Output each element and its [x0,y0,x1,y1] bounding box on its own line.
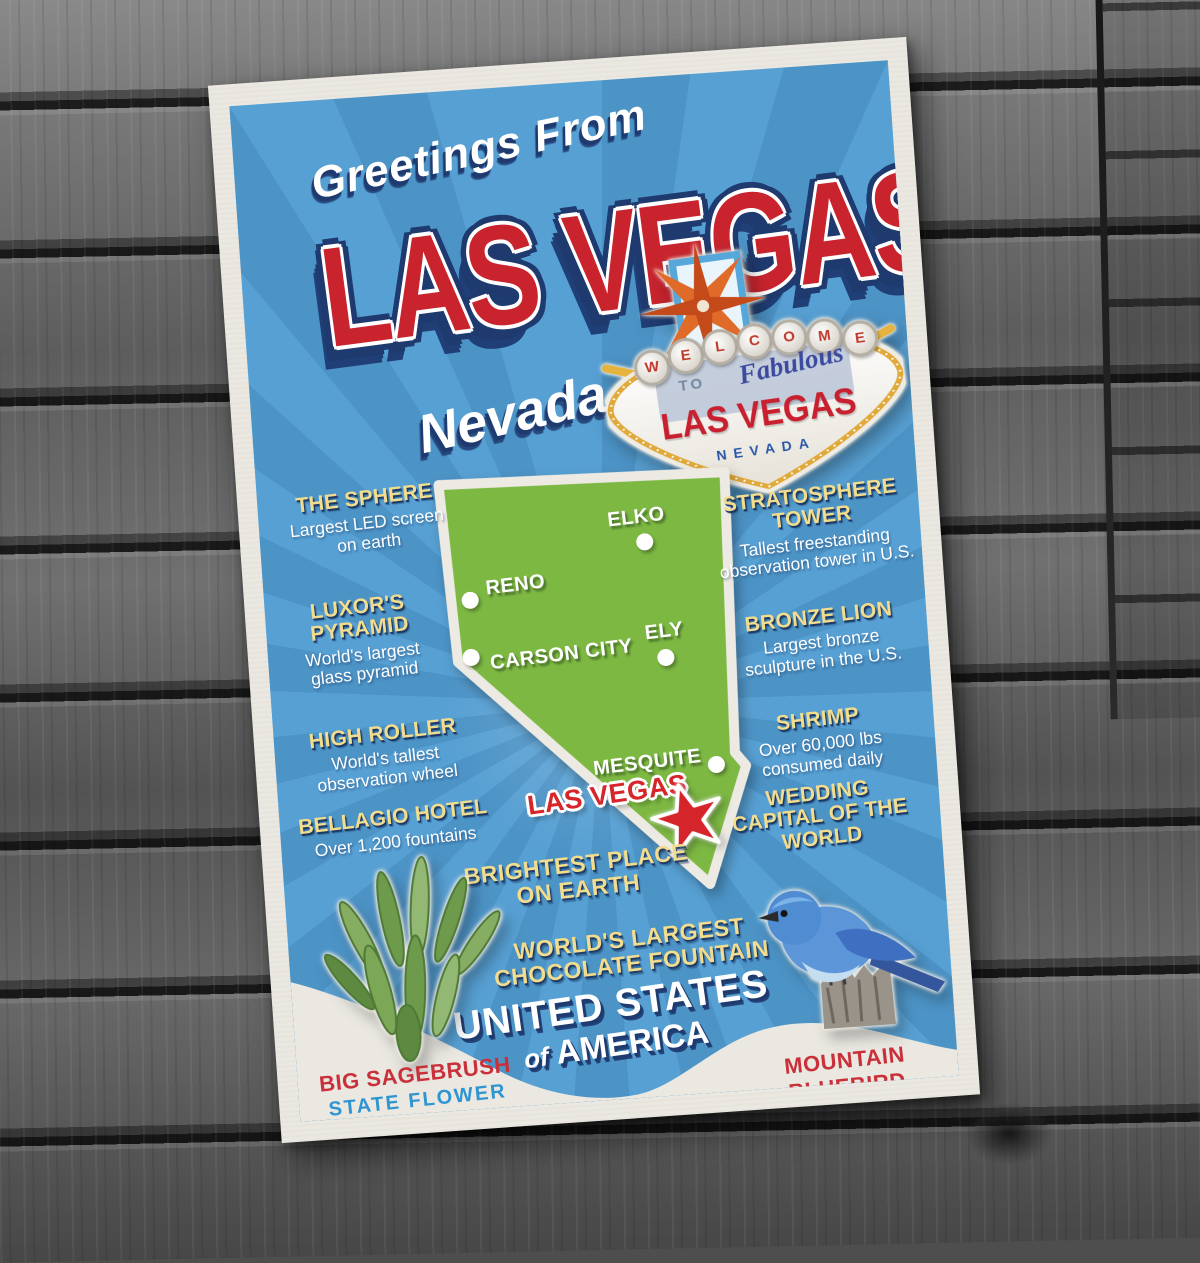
country-of: of [522,1041,550,1074]
fact-luxors-pyramid: LUXOR'S PYRAMID World's largest glass py… [276,588,445,694]
wood-right-planks [1101,0,1200,719]
postcard: Greetings From LAS VEGAS Nevada [208,37,980,1143]
sagebrush-image [301,841,516,1069]
bluebird-image [739,855,959,1034]
fact-the-sphere: THE SPHERE Largest LED screen on earth [278,478,454,563]
sign-letter-circle: E [665,336,706,377]
fact-shrimp: SHRIMP Over 60,000 lbs consumed daily [737,700,903,784]
postcard-blue-canvas: Greetings From LAS VEGAS Nevada [229,60,958,1122]
